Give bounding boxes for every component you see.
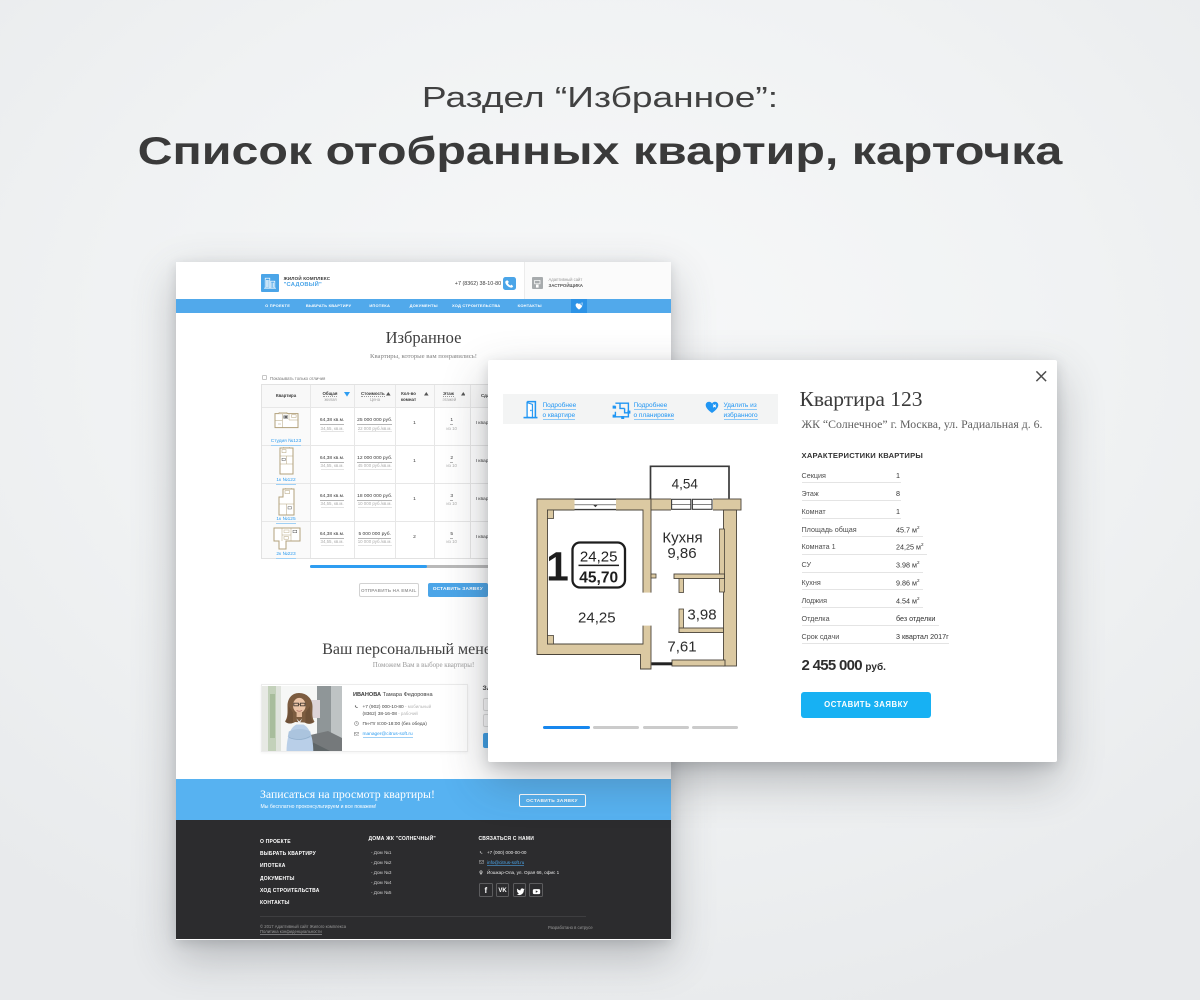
svg-text:9,86: 9,86 (667, 545, 696, 562)
svg-text:24,25: 24,25 (580, 549, 618, 566)
svg-text:4,54: 4,54 (672, 477, 699, 492)
svg-text:3,98: 3,98 (687, 607, 716, 624)
svg-text:Кухня: Кухня (662, 530, 702, 547)
svg-text:24,25: 24,25 (578, 610, 616, 627)
svg-text:1: 1 (546, 544, 569, 590)
svg-text:9: 9 (581, 302, 583, 306)
svg-text:7,61: 7,61 (667, 639, 696, 656)
svg-text:45,70: 45,70 (579, 570, 618, 587)
